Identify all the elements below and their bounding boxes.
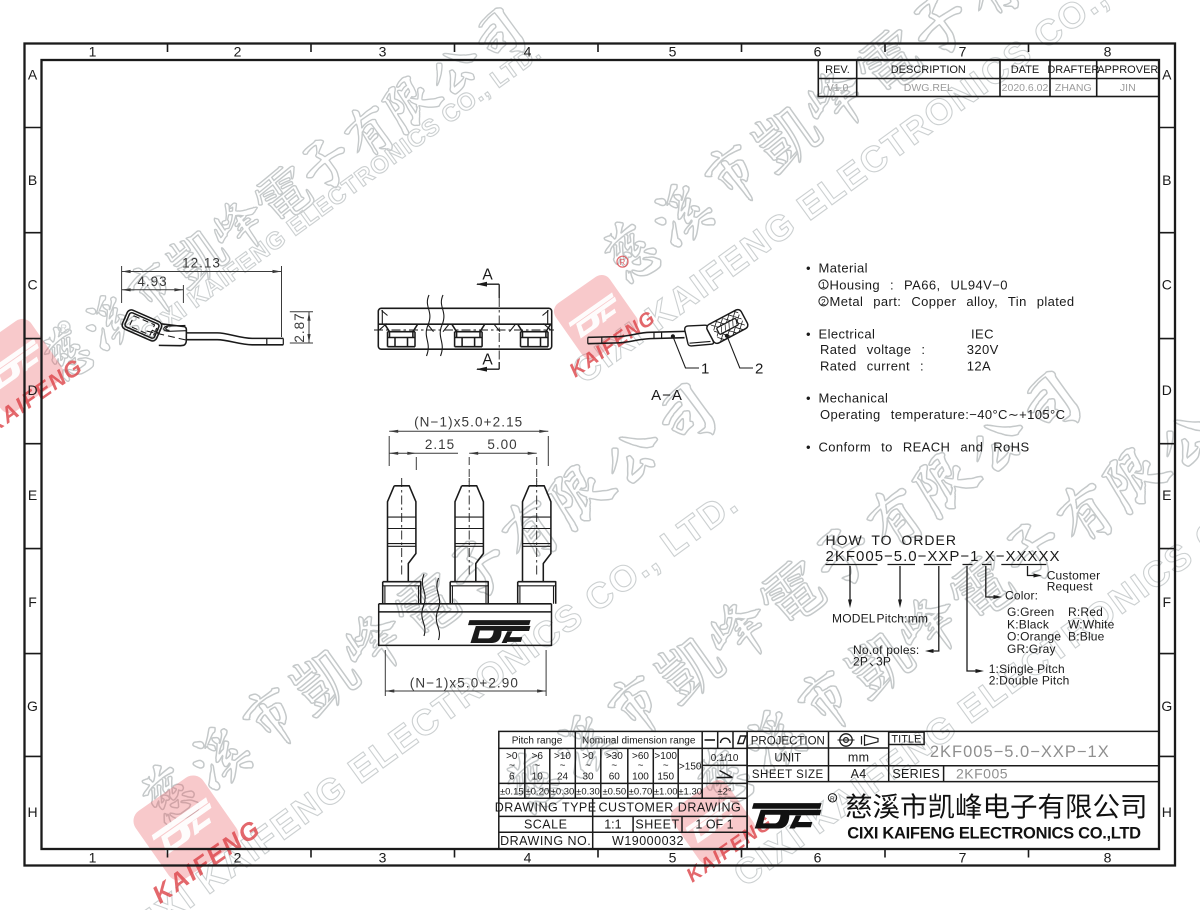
svg-text:2.87: 2.87 — [292, 312, 307, 342]
svg-text:SHEET SIZE: SHEET SIZE — [752, 769, 824, 781]
svg-text:F: F — [1163, 594, 1172, 610]
svg-text:2KF005: 2KF005 — [956, 765, 1008, 781]
svg-text:A−A: A−A — [651, 387, 683, 404]
svg-text:1: 1 — [701, 361, 709, 378]
svg-text:REV.: REV. — [825, 64, 850, 76]
svg-text:APPROVER: APPROVER — [1097, 64, 1158, 76]
svg-text:A: A — [482, 352, 493, 369]
svg-text:TITLE: TITLE — [891, 733, 921, 745]
svg-text:ZHANG: ZHANG — [1055, 82, 1092, 94]
svg-text:DATE: DATE — [1011, 64, 1040, 76]
svg-text:1: 1 — [89, 44, 97, 60]
svg-text:HOW TO ORDER: HOW TO ORDER — [826, 532, 958, 548]
svg-text:Material: Material — [819, 261, 868, 276]
svg-text:1: 1 — [821, 280, 826, 290]
svg-text:2: 2 — [234, 850, 242, 866]
svg-text:(N−1)x5.0+2.15: (N−1)x5.0+2.15 — [414, 415, 523, 430]
svg-text:3: 3 — [379, 44, 387, 60]
svg-text:0.1/10: 0.1/10 — [711, 753, 739, 764]
svg-text:A: A — [1162, 67, 1172, 83]
svg-text:SCALE: SCALE — [524, 818, 568, 832]
svg-text:W19000032: W19000032 — [612, 834, 684, 848]
svg-text:UNIT: UNIT — [774, 753, 801, 765]
svg-text:±1.30: ±1.30 — [678, 787, 702, 798]
svg-text:4: 4 — [524, 850, 532, 866]
svg-text:Housing : PA66, UL94V−0: Housing : PA66, UL94V−0 — [830, 277, 1008, 292]
svg-text:6: 6 — [509, 772, 515, 783]
svg-text:SHEET: SHEET — [635, 818, 679, 832]
svg-text:Pitch:mm: Pitch:mm — [877, 612, 929, 626]
svg-text:D: D — [1162, 382, 1172, 398]
svg-text:~: ~ — [509, 761, 515, 772]
svg-text:F: F — [28, 594, 37, 610]
svg-text:5: 5 — [669, 44, 677, 60]
svg-text:GR:Gray: GR:Gray — [1007, 642, 1056, 656]
svg-text:320V: 320V — [967, 342, 999, 357]
svg-text:30: 30 — [582, 772, 594, 783]
svg-text:E: E — [1162, 487, 1171, 503]
svg-text:±0.15: ±0.15 — [500, 787, 524, 798]
svg-text:mm: mm — [848, 751, 869, 765]
svg-text:60: 60 — [609, 772, 621, 783]
svg-text:±0.70: ±0.70 — [629, 787, 653, 798]
svg-text:1 OF 1: 1 OF 1 — [695, 818, 733, 832]
svg-text:3P: 3P — [876, 655, 891, 669]
svg-text:6: 6 — [814, 850, 822, 866]
svg-text:B:Blue: B:Blue — [1068, 630, 1105, 644]
svg-text:DRAWING NO.: DRAWING NO. — [500, 834, 591, 848]
svg-text:•: • — [806, 440, 811, 455]
svg-text:B: B — [28, 172, 37, 188]
svg-text:•: • — [806, 261, 811, 276]
svg-text:B: B — [1162, 172, 1171, 188]
svg-text:Rated current :: Rated current : — [820, 359, 924, 374]
svg-text:~: ~ — [611, 761, 617, 772]
svg-text:>150: >150 — [679, 762, 702, 773]
svg-text:Color:: Color: — [1005, 588, 1038, 602]
svg-text:2: 2 — [234, 44, 242, 60]
svg-text:2: 2 — [755, 361, 763, 378]
svg-text:R: R — [620, 258, 626, 267]
svg-text:±0.50: ±0.50 — [602, 787, 626, 798]
svg-text:A: A — [482, 267, 493, 284]
svg-text:±0.20: ±0.20 — [525, 787, 549, 798]
svg-text:A: A — [28, 67, 38, 83]
svg-text:~: ~ — [560, 761, 566, 772]
svg-text:~: ~ — [585, 761, 591, 772]
svg-text:~: ~ — [663, 761, 669, 772]
svg-text:D: D — [27, 382, 37, 398]
svg-text:12.13: 12.13 — [182, 256, 221, 271]
svg-text:(N−1)x5.0+2.90: (N−1)x5.0+2.90 — [410, 676, 519, 691]
svg-text:100: 100 — [632, 772, 649, 783]
svg-text:6: 6 — [814, 44, 822, 60]
svg-text:G: G — [27, 698, 38, 714]
svg-text:R: R — [61, 323, 68, 333]
svg-text:CUSTOMER DRAWING: CUSTOMER DRAWING — [599, 801, 742, 815]
svg-text:Metal part: Copper alloy, Tin: Metal part: Copper alloy, Tin plated — [830, 294, 1075, 309]
svg-text:7: 7 — [959, 850, 967, 866]
svg-text:•: • — [806, 326, 811, 341]
svg-text:10: 10 — [532, 772, 544, 783]
svg-text:R: R — [830, 796, 835, 803]
svg-text:7: 7 — [959, 44, 967, 60]
svg-text:Conform to REACH and RoHS: Conform to REACH and RoHS — [819, 440, 1030, 455]
svg-text:±0.30: ±0.30 — [576, 787, 600, 798]
svg-text:2.15: 2.15 — [425, 437, 455, 452]
svg-text:H: H — [27, 804, 37, 820]
svg-text:E: E — [28, 487, 37, 503]
svg-text:•: • — [806, 390, 811, 405]
svg-text:2P: 2P — [853, 655, 868, 669]
svg-text:2KF005−5.0−XXP−1X: 2KF005−5.0−XXP−1X — [930, 743, 1110, 761]
svg-text:1:1: 1:1 — [604, 818, 621, 832]
svg-text:V1.0: V1.0 — [827, 82, 849, 94]
svg-text:DESCRIPTION: DESCRIPTION — [891, 64, 966, 76]
svg-text:24: 24 — [557, 772, 569, 783]
svg-text:Operating temperature:−40°C∼+1: Operating temperature:−40°C∼+105°C — [820, 407, 1065, 422]
svg-text:SERIES: SERIES — [892, 767, 940, 781]
svg-text:2020.6.02: 2020.6.02 — [1002, 82, 1049, 94]
svg-text:C: C — [27, 277, 37, 293]
svg-text:8: 8 — [1104, 850, 1112, 866]
svg-text:5.00: 5.00 — [487, 437, 517, 452]
svg-text:C: C — [1162, 277, 1172, 293]
svg-text:Rated voltage :: Rated voltage : — [820, 342, 925, 357]
svg-text:5: 5 — [669, 850, 677, 866]
svg-text:Nominal dimension range: Nominal dimension range — [582, 736, 696, 747]
svg-text:2:Double Pitch: 2:Double Pitch — [989, 674, 1070, 688]
svg-text:2: 2 — [821, 297, 826, 307]
svg-text:A4: A4 — [851, 767, 867, 781]
svg-text:PROJECTION: PROJECTION — [751, 736, 825, 748]
svg-text:G: G — [1161, 698, 1172, 714]
svg-text:±2°: ±2° — [717, 787, 731, 798]
svg-text:12A: 12A — [967, 359, 991, 374]
svg-text:DRAWING TYPE: DRAWING TYPE — [495, 801, 597, 815]
svg-text:4: 4 — [524, 44, 532, 60]
svg-text:~: ~ — [638, 761, 644, 772]
svg-text:Electrical: Electrical — [819, 326, 876, 341]
svg-text:IEC: IEC — [971, 326, 994, 341]
svg-text:4.93: 4.93 — [137, 274, 167, 289]
svg-text:Mechanical: Mechanical — [819, 390, 889, 405]
svg-text:DWG.REL: DWG.REL — [904, 82, 953, 94]
svg-text:3: 3 — [379, 850, 387, 866]
svg-text:1: 1 — [89, 850, 97, 866]
svg-text:MODEL: MODEL — [832, 612, 876, 626]
svg-text:DRAFTER: DRAFTER — [1047, 64, 1099, 76]
svg-text:2KF005−5.0−XXP−1 X−XXXXX: 2KF005−5.0−XXP−1 X−XXXXX — [826, 548, 1061, 565]
svg-text:150: 150 — [657, 772, 674, 783]
svg-text:±0.30: ±0.30 — [551, 787, 575, 798]
svg-text:H: H — [1162, 804, 1172, 820]
svg-text:Pitch range: Pitch range — [512, 736, 563, 747]
svg-text:~: ~ — [534, 761, 540, 772]
svg-text:±1.00: ±1.00 — [654, 787, 678, 798]
svg-text:8: 8 — [1104, 44, 1112, 60]
svg-text:Request: Request — [1047, 580, 1094, 594]
svg-text:CIXI KAIFENG ELECTRONICS CO.,L: CIXI KAIFENG ELECTRONICS CO.,LTD — [847, 825, 1141, 843]
svg-text:JIN: JIN — [1120, 82, 1136, 94]
